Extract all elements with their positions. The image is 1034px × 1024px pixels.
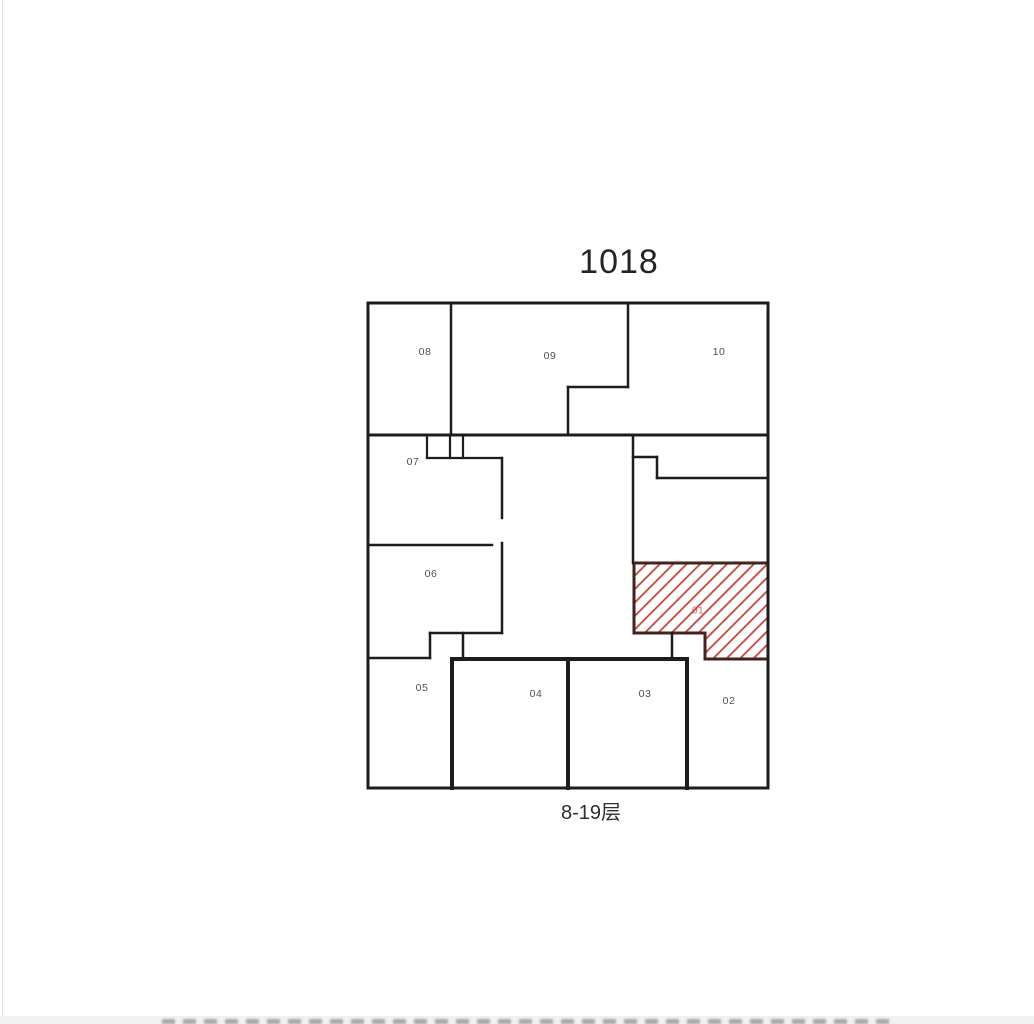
bottom-cutoff-text-fragment [162,1019,890,1024]
room-label-06: 06 [425,568,438,580]
walls-group [368,303,768,788]
floor-plan-page: 1018 08091007060504030201 8-19层 [0,0,1034,1024]
floor-range-caption: 8-19层 [561,796,621,825]
room-label-01: 01 [692,606,704,617]
room-label-10: 10 [713,346,726,358]
room-label-09: 09 [544,350,557,362]
floor-plan-svg [0,0,1034,1024]
room-label-03: 03 [639,688,652,700]
room-label-05: 05 [416,682,429,694]
room-label-08: 08 [419,346,432,358]
room-label-07: 07 [407,456,420,468]
room-label-04: 04 [530,688,543,700]
room-label-02: 02 [723,695,736,707]
